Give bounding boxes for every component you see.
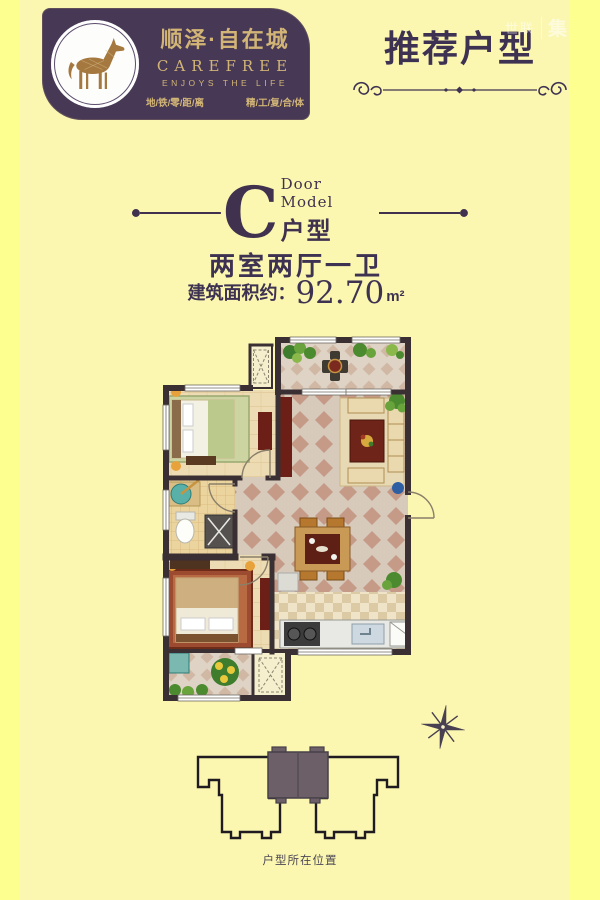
model-label-en: Door Model [281, 175, 380, 211]
area-value: 92.70 [295, 278, 384, 308]
master-dresser [170, 560, 210, 569]
shaft-north [250, 345, 272, 388]
watermark-divider [541, 17, 542, 39]
master-tv-cabinet [260, 578, 271, 630]
location-caption: 户型所在位置 [0, 852, 600, 868]
master-bed [167, 561, 255, 648]
slogan-left: 地/铁/零/距/离 [146, 95, 204, 109]
area-spec: 建筑面积约： 92.70 m² [0, 278, 592, 308]
brand-tagline: ENJOYS THE LIFE [146, 78, 304, 88]
dining-set [295, 518, 350, 580]
highlighted-unit [268, 747, 328, 803]
brand-slogan: 地/铁/零/距/离 精/工/复/合/体 [146, 95, 304, 109]
corner-watermark: 世联 集 [505, 14, 567, 41]
area-unit: m² [386, 288, 404, 308]
horse-icon [59, 34, 131, 96]
slogan-right: 精/工/复/合/体 [246, 95, 304, 109]
sofa-set [340, 398, 404, 486]
left-rule-icon [130, 205, 221, 221]
poster-page: 顺泽·自在城 CAREFREE ENJOYS THE LIFE 地/铁/零/距/… [0, 0, 600, 900]
floorplan [140, 330, 450, 708]
dresser [186, 456, 216, 465]
logo-circle [51, 20, 139, 108]
shaft-south [253, 652, 288, 698]
right-rule-icon [379, 205, 470, 221]
building-location-diagram [180, 738, 416, 848]
cabinet [278, 573, 298, 591]
model-header: C Door Model 户型 [130, 180, 470, 246]
area-label: 建筑面积约： [187, 279, 295, 308]
brand-name: 顺泽·自在城 [146, 22, 304, 54]
model-letter: C [223, 184, 279, 242]
brand-name-en: CAREFREE [146, 57, 304, 75]
tv-cabinet [280, 397, 292, 477]
kitchen-counter [280, 620, 406, 648]
vase [392, 482, 404, 494]
watermark-right: 集 [548, 14, 567, 41]
scroll-divider-icon [350, 78, 570, 102]
brand-logo-badge: 顺泽·自在城 CAREFREE ENJOYS THE LIFE 地/铁/零/距/… [42, 8, 310, 120]
wardrobe [258, 412, 272, 450]
left-frame-stripe [0, 0, 20, 900]
right-frame-stripe [570, 0, 600, 900]
model-label-cn: 户型 [281, 211, 333, 246]
watermark-left: 世联 [505, 18, 535, 37]
compass-rose-icon [413, 697, 473, 757]
